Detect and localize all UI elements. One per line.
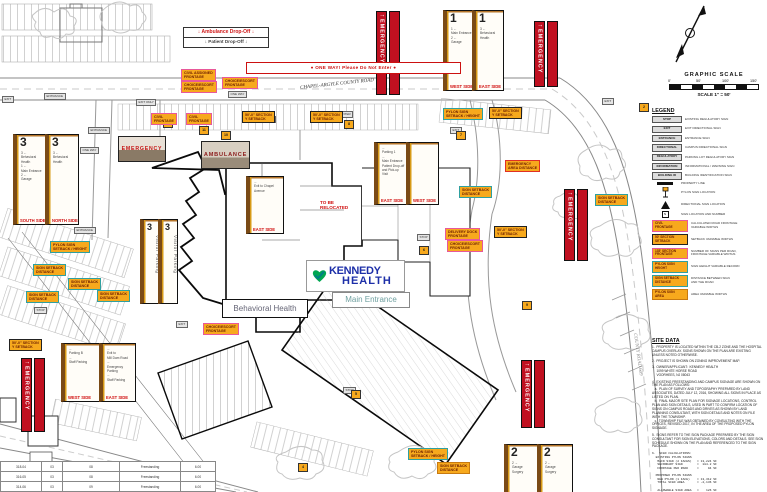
emergency-banner-text: EMERGENCY — [24, 366, 30, 410]
pylon-sign-icon — [652, 187, 678, 198]
photo-inset-ambulance: AMBULANCE — [201, 141, 250, 169]
panel-entries: 2 → Garage Surgery — [508, 458, 538, 492]
legend-row: CIVIL FRONTAGECALCULATED ROAD FRONTAGE V… — [652, 220, 764, 232]
legend-sign-swatch: BUILDING ID — [652, 172, 682, 179]
wayfinding-sign-panel-1-west: 11 ← Main Entrance 2 ← GarageWEST SIDE — [443, 10, 474, 91]
road-sign-label: STOP — [417, 234, 430, 241]
graphic-scale-title: GRAPHIC SCALE — [664, 72, 764, 78]
emergency-banner: ↑EMERGENCY — [534, 21, 558, 87]
measurement-label: CIVIL ASSIGNED FRONTAGE — [181, 69, 216, 81]
garage-sign-panel-2: 22 ← Garage Surgery — [537, 444, 573, 492]
sign-schedule-table: 318-04 03 08 Freestanding 6.00 316-05 03… — [0, 461, 216, 492]
schedule-cell: 03 — [42, 462, 63, 472]
measurement-label: 50'-0" SECTION Y SETBACK — [489, 107, 522, 119]
legend-row: PYLON SIGN AREAAREA VARIABLE WIDTHS — [652, 289, 764, 301]
photo-inset-emergency: EMERGENCY — [118, 136, 166, 162]
schedule-cell: 6.00 — [181, 482, 216, 492]
legend-row: INFORMATIONINFORMATIONAL / WARNING SIGN — [652, 163, 764, 170]
panel-entries: 2 ← Garage Surgery — [541, 458, 572, 492]
road-sign-label: ENTRANCE — [74, 227, 96, 234]
sign-location-marker: 5 — [351, 390, 361, 399]
graphic-scale-ticks: 0' 50' 100' 150' — [664, 79, 764, 84]
measurement-label: 50'-0" SECTION Y SETBACK — [9, 339, 42, 351]
heart-icon — [312, 269, 327, 283]
emergency-banner-text: EMERGENCY — [537, 29, 543, 73]
schedule-cell: 6.00 — [181, 462, 216, 472]
panel-side-label: WEST SIDE — [447, 84, 473, 91]
site-plan: GRAPHIC SCALE 0' 50' 100' 150' SCALE 1" … — [0, 0, 767, 492]
schedule-cell: 03 — [42, 472, 63, 482]
legend-desc: ENTRANCE SIGN — [685, 137, 710, 140]
logo-word-health: HEALTH — [342, 276, 392, 286]
road-sign-label: ENTRANCE — [88, 127, 110, 134]
site-data: SITE DATA 1. PROPERTY IS LOCATED WITHIN … — [652, 338, 764, 492]
legend-desc: INFORMATIONAL / WARNING SIGN — [685, 165, 734, 168]
sign-location-marker: 10 — [221, 131, 231, 140]
site-data-item: 6. SIGN CALCULATIONS: EXISTING PYLON SIG… — [652, 452, 764, 472]
legend-desc: CAMPUS DIRECTIONAL SIGN — [685, 146, 727, 149]
road-sign-label: EXIT — [2, 96, 14, 103]
legend-desc: NUMBER OF SIGNS PER ROAD, FRONTAGE VARIA… — [691, 250, 737, 257]
panel-side-label: EAST SIDE — [476, 84, 503, 91]
legend: LEGEND STOPEXISTING REGULATORY SIGN EXIT… — [652, 108, 764, 303]
legend-row: NSIGN LOCATION AND NUMBER — [652, 211, 764, 218]
panel-entries — [410, 143, 438, 198]
panel-number: 3 — [144, 220, 159, 233]
panel-side-label: NORTH SIDE — [49, 218, 78, 225]
garage-sign-panel-2: 22 → Garage Surgery — [504, 444, 539, 492]
panel-side-label: EAST SIDE — [103, 395, 135, 402]
measurement-label: PYLON SIGN SETBACK / HEIGHT — [408, 448, 448, 460]
sign-location-icon: N — [652, 211, 678, 218]
road-sign-label: EXIT — [602, 98, 614, 105]
measurement-label: SIGN SETBACK DISTANCE — [26, 291, 59, 303]
main-entrance-label: Main Entrance — [332, 292, 410, 308]
wayfinding-sign-panel-3-north: 33 ← Behavioral HealthNORTH SIDE — [45, 134, 79, 225]
scale-tick: 50' — [696, 79, 701, 83]
legend-row: REGULATORYPARKING LOT REGULATORY SIGN — [652, 154, 764, 161]
measurement-label: PYLON SIGN SETBACK / HEIGHT — [443, 108, 483, 120]
schedule-cell: 08 — [63, 472, 120, 482]
sign-location-marker: 2 — [639, 103, 649, 112]
legend-sign-swatch: REGULATORY — [652, 154, 682, 161]
staff-parking-sign-panel-east: ← Exit to Mill Dam Road ← Emergency Park… — [99, 343, 136, 402]
emergency-banner-text: EMERGENCY — [524, 368, 530, 412]
legend-row: PROPERTY LINE — [652, 182, 764, 185]
legend-row: EXITEXIT DIRECTIONAL SIGN — [652, 126, 764, 133]
road-sign-label: ENTRANCE — [44, 93, 66, 100]
main-entrance-sign-panel-east: ← Parking 1 ← Main Entrance Patient Drop… — [374, 142, 408, 205]
staff-parking-sign-panel-west: ← Parking B ← Staff ParkingWEST SIDE — [61, 343, 101, 402]
legend-desc: EXISTING REGULATORY SIGN — [685, 118, 728, 121]
site-data-item: 1. PROPERTY IS LOCATED WITHIN THE CB-2 Z… — [652, 346, 764, 358]
up-arrow-icon: ↑ — [537, 24, 543, 28]
legend-desc: AREA VARIABLE WIDTHS — [691, 293, 727, 296]
legend-desc: PARKING LOT REGULATORY SIGN — [685, 156, 734, 159]
wayfinding-sign-panel-1-east: 13 ← Behavioral HealthEAST SIDE — [472, 10, 504, 91]
sign-location-marker: 8 — [344, 120, 354, 129]
measurement-label: SIGN SETBACK DISTANCE — [33, 264, 66, 276]
visitor-parking-panel: 3Visitor Parking — [140, 219, 160, 304]
schedule-cell: Freestanding — [120, 482, 181, 492]
legend-desc: PROPERTY LINE — [681, 182, 705, 185]
panel-number: 1 — [476, 11, 503, 24]
measurement-label: CIVIL FRONTAGE — [151, 113, 177, 125]
road-sign-label: ONE WAY — [80, 147, 99, 154]
sign-location-marker: 9 — [522, 301, 532, 310]
measurement-label: SIGN SETBACK DISTANCE — [595, 194, 628, 206]
ambulance-drop-off-label: ↓ Ambulance Drop-Off ↓ — [184, 28, 268, 38]
emergency-banner-text: EMERGENCY — [379, 19, 385, 63]
chapel-avenue-sign-panel: ← Exit to Chapel AvenueEAST SIDE — [246, 176, 284, 234]
legend-row: ENTRANCEENTRANCE SIGN — [652, 135, 764, 142]
panel-entries: 3 ← Behavioral Health 1 ← Main Entrance … — [17, 148, 46, 218]
schedule-cell: 314-06 — [1, 482, 42, 492]
site-data-heading: SITE DATA — [652, 338, 764, 344]
measurement-label: CHOICE/ESCORT FRONTAGE — [203, 323, 239, 335]
legend-row: DIRECTIONAL SIGN LOCATION — [652, 201, 764, 209]
schedule-cell: 03 — [42, 482, 63, 492]
legend-row: SIGN SETBACK DISTANCEDISTANCE BETWEEN SI… — [652, 275, 764, 287]
legend-row: PYLON SIGN HEIGHTSIGN HEIGHT VARIABLE RE… — [652, 261, 764, 273]
main-entrance-sign-panel-west: WEST SIDE — [406, 142, 439, 205]
emergency-banner: ↑EMERGENCY — [521, 360, 545, 428]
panel-number: 1 — [447, 11, 473, 24]
site-data-item: 3. OWNER/APPLICANT: KENNEDY HEALTH 1099 … — [652, 366, 764, 378]
legend-row: 50' SECTION SETBACKSETBACK VARIABLE WIDT… — [652, 234, 764, 246]
legend-row: STOPEXISTING REGULATORY SIGN — [652, 116, 764, 123]
legend-desc: EXIT DIRECTIONAL SIGN — [685, 127, 721, 130]
visitor-parking-panel: 3Visitor Parking — [158, 219, 178, 304]
schedule-cell: 08 — [63, 462, 120, 472]
property-line-icon — [652, 182, 678, 184]
legend-measure-swatch: PYLON SIGN AREA — [652, 289, 688, 301]
scale-tick: 0' — [668, 79, 671, 83]
legend-sign-swatch: INFORMATION — [652, 163, 682, 170]
panel-entries: ← Exit to Mill Dam Road ← Emergency Park… — [103, 344, 135, 395]
panel-entries: 3 ← Behavioral Health — [476, 24, 503, 84]
legend-sign-swatch: STOP — [652, 116, 682, 123]
legend-measure-swatch: 50' SECTION SETBACK — [652, 234, 688, 246]
legend-measure-swatch: PYLON SIGN HEIGHT — [652, 261, 688, 273]
site-data-item: 5. SIGNS REFER TO THE SIGN PACKAGE PREPA… — [652, 434, 764, 450]
legend-desc: DIRECTIONAL SIGN LOCATION — [681, 203, 725, 206]
photo-ambulance-text: AMBULANCE — [204, 152, 247, 158]
panel-entries: Visitor Parking — [162, 233, 177, 303]
panel-entries: ← Exit to Chapel Avenue — [250, 177, 283, 227]
site-data-item: 4. EXISTING FREESTANDING AND CAMPUS SIGN… — [652, 381, 764, 432]
measurement-label: 50'-0" SECTION Y SETBACK — [494, 226, 527, 238]
graphic-scale-caption: SCALE 1" = 50' — [664, 92, 764, 97]
legend-sign-swatch: DIRECTIONAL — [652, 144, 682, 151]
road-sign-label: STOP — [34, 307, 47, 314]
legend-row: BUILDING IDBUILDING IDENTIFICATION SIGN — [652, 172, 764, 179]
site-data-item: 2. PROJECT IS SHOWN ON ZONING IMPROVEMEN… — [652, 360, 764, 364]
schedule-cell: 318-04 — [1, 462, 42, 472]
measurement-label: PYLON SIGN SETBACK / HEIGHT — [50, 241, 90, 253]
measurement-label: DELIVERY DOCK FRONTAGE — [445, 228, 480, 240]
legend-desc: SIGN LOCATION AND NUMBER — [681, 213, 725, 216]
kennedy-health-logo: KENNEDY HEALTH — [306, 260, 405, 292]
legend-desc: SETBACK VARIABLE WIDTHS — [691, 238, 733, 241]
panel-entries: Visitor Parking — [144, 233, 159, 303]
drop-off-sign: ↓ Ambulance Drop-Off ↓ ↓ Patient Drop-Of… — [183, 27, 269, 48]
up-arrow-icon: ↑ — [24, 361, 30, 365]
table-row: 316-05 03 08 Freestanding 6.00 — [1, 472, 216, 482]
legend-desc: SIGN HEIGHT VARIABLE RECORD — [691, 265, 740, 268]
legend-desc: BUILDING IDENTIFICATION SIGN — [685, 174, 732, 177]
panel-entries: 1 ← Main Entrance 2 ← Garage — [447, 24, 473, 84]
emergency-banner-text: EMERGENCY — [567, 197, 573, 241]
sign-location-marker: 7 — [456, 131, 466, 140]
panel-entries: ← Parking 1 ← Main Entrance Patient Drop… — [378, 143, 407, 198]
panel-side-label: EAST SIDE — [250, 227, 283, 234]
measurement-label: SIGN SETBACK DISTANCE — [459, 186, 492, 198]
emergency-banner: ↑EMERGENCY — [564, 189, 588, 261]
schedule-cell: Freestanding — [120, 462, 181, 472]
to-be-relocated-note: TO BE RELOCATED — [320, 200, 348, 210]
measurement-label: 50'-0" SECTION Y SETBACK — [242, 111, 275, 123]
panel-side-label: SOUTH SIDE — [17, 218, 46, 225]
legend-row: DIRECTIONALCAMPUS DIRECTIONAL SIGN — [652, 144, 764, 151]
legend-row: 135' SECTION FRONTAGENUMBER OF SIGNS PER… — [652, 248, 764, 260]
measurement-label: EMERGENCY AREA DISTANCE — [505, 160, 540, 172]
schedule-cell: Freestanding — [120, 472, 181, 482]
site-data-item: PROPOSED PYLON SIGNS NEW PYLON (1 FACE) … — [652, 474, 764, 492]
road-sign-label: EXIT ONLY — [136, 99, 156, 106]
road-sign-label: EXIT — [176, 321, 188, 328]
legend-row: PYLON SIGN LOCATION — [652, 187, 764, 198]
measurement-label: CHOICE/ESCORT FRONTAGE — [447, 240, 483, 252]
schedule-cell: 09 — [63, 482, 120, 492]
up-arrow-icon: ↑ — [567, 192, 573, 196]
emergency-banner: ↑EMERGENCY — [376, 11, 400, 95]
behavioral-health-label: Behavioral Health — [222, 299, 308, 318]
legend-heading: LEGEND — [652, 108, 764, 114]
panel-side-label: WEST SIDE — [65, 395, 100, 402]
legend-sign-swatch: EXIT — [652, 126, 682, 133]
up-arrow-icon: ↑ — [379, 14, 385, 18]
emergency-banner: ↑EMERGENCY — [21, 358, 45, 432]
measurement-label: CIVIL FRONTAGE — [186, 113, 212, 125]
panel-side-label: WEST SIDE — [410, 198, 438, 205]
measurement-label: CHOICE/ESCORT FRONTAGE — [181, 81, 217, 93]
legend-measure-swatch: 135' SECTION FRONTAGE — [652, 248, 688, 260]
panel-number: 2 — [508, 445, 538, 458]
photo-emergency-text: EMERGENCY — [122, 146, 163, 152]
scale-bar — [669, 84, 759, 90]
measurement-label: SIGN SETBACK DISTANCE — [437, 462, 470, 474]
panel-number: 3 — [17, 135, 46, 148]
sign-location-marker: 11 — [199, 126, 209, 135]
one-way-banner: ● ONE WAY! Please Do Not Enter ● — [246, 62, 461, 74]
schedule-cell: 316-05 — [1, 472, 42, 482]
legend-measure-swatch: SIGN SETBACK DISTANCE — [652, 275, 688, 287]
table-row: 314-06 03 09 Freestanding 6.00 — [1, 482, 216, 492]
scale-tick: 100' — [722, 79, 729, 83]
sign-location-marker: 4 — [298, 463, 308, 472]
legend-desc: DISTANCE BETWEEN SIGN AND THE ROAD — [691, 277, 730, 284]
panel-entries: ← Parking B ← Staff Parking — [65, 344, 100, 395]
panel-number: 3 — [162, 220, 177, 233]
measurement-label: CHOICE/ESCORT FRONTAGE — [222, 77, 258, 89]
wayfinding-sign-panel-3-south: 33 ← Behavioral Health 1 ← Main Entrance… — [13, 134, 47, 225]
panel-number: 2 — [541, 445, 572, 458]
legend-desc: CALCULATED ROAD FRONTAGE VARIABLE WIDTHS — [691, 222, 737, 229]
up-arrow-icon: ↑ — [524, 363, 530, 367]
legend-measure-swatch: CIVIL FRONTAGE — [652, 220, 688, 232]
panel-side-label: EAST SIDE — [378, 198, 407, 205]
table-row: 318-04 03 08 Freestanding 6.00 — [1, 462, 216, 472]
road-sign-label: ONE WAY — [228, 91, 247, 98]
measurement-label: SIGN SETBACK DISTANCE — [97, 290, 130, 302]
graphic-scale: GRAPHIC SCALE 0' 50' 100' 150' SCALE 1" … — [664, 72, 764, 97]
schedule-cell: 6.00 — [181, 472, 216, 482]
directional-sign-icon — [652, 201, 678, 209]
patient-drop-off-label: ↓ Patient Drop-Off ↓ — [184, 38, 268, 47]
sign-location-marker: 6 — [419, 246, 429, 255]
scale-tick: 150' — [750, 79, 757, 83]
north-arrow-icon — [676, 6, 706, 62]
panel-number: 3 — [49, 135, 78, 148]
legend-sign-swatch: ENTRANCE — [652, 135, 682, 142]
legend-desc: PYLON SIGN LOCATION — [681, 191, 715, 194]
measurement-label: SIGN SETBACK DISTANCE — [68, 278, 101, 290]
panel-entries: 3 ← Behavioral Health — [49, 148, 78, 218]
measurement-label: 50'-0" SECTION Y SETBACK — [310, 111, 343, 123]
